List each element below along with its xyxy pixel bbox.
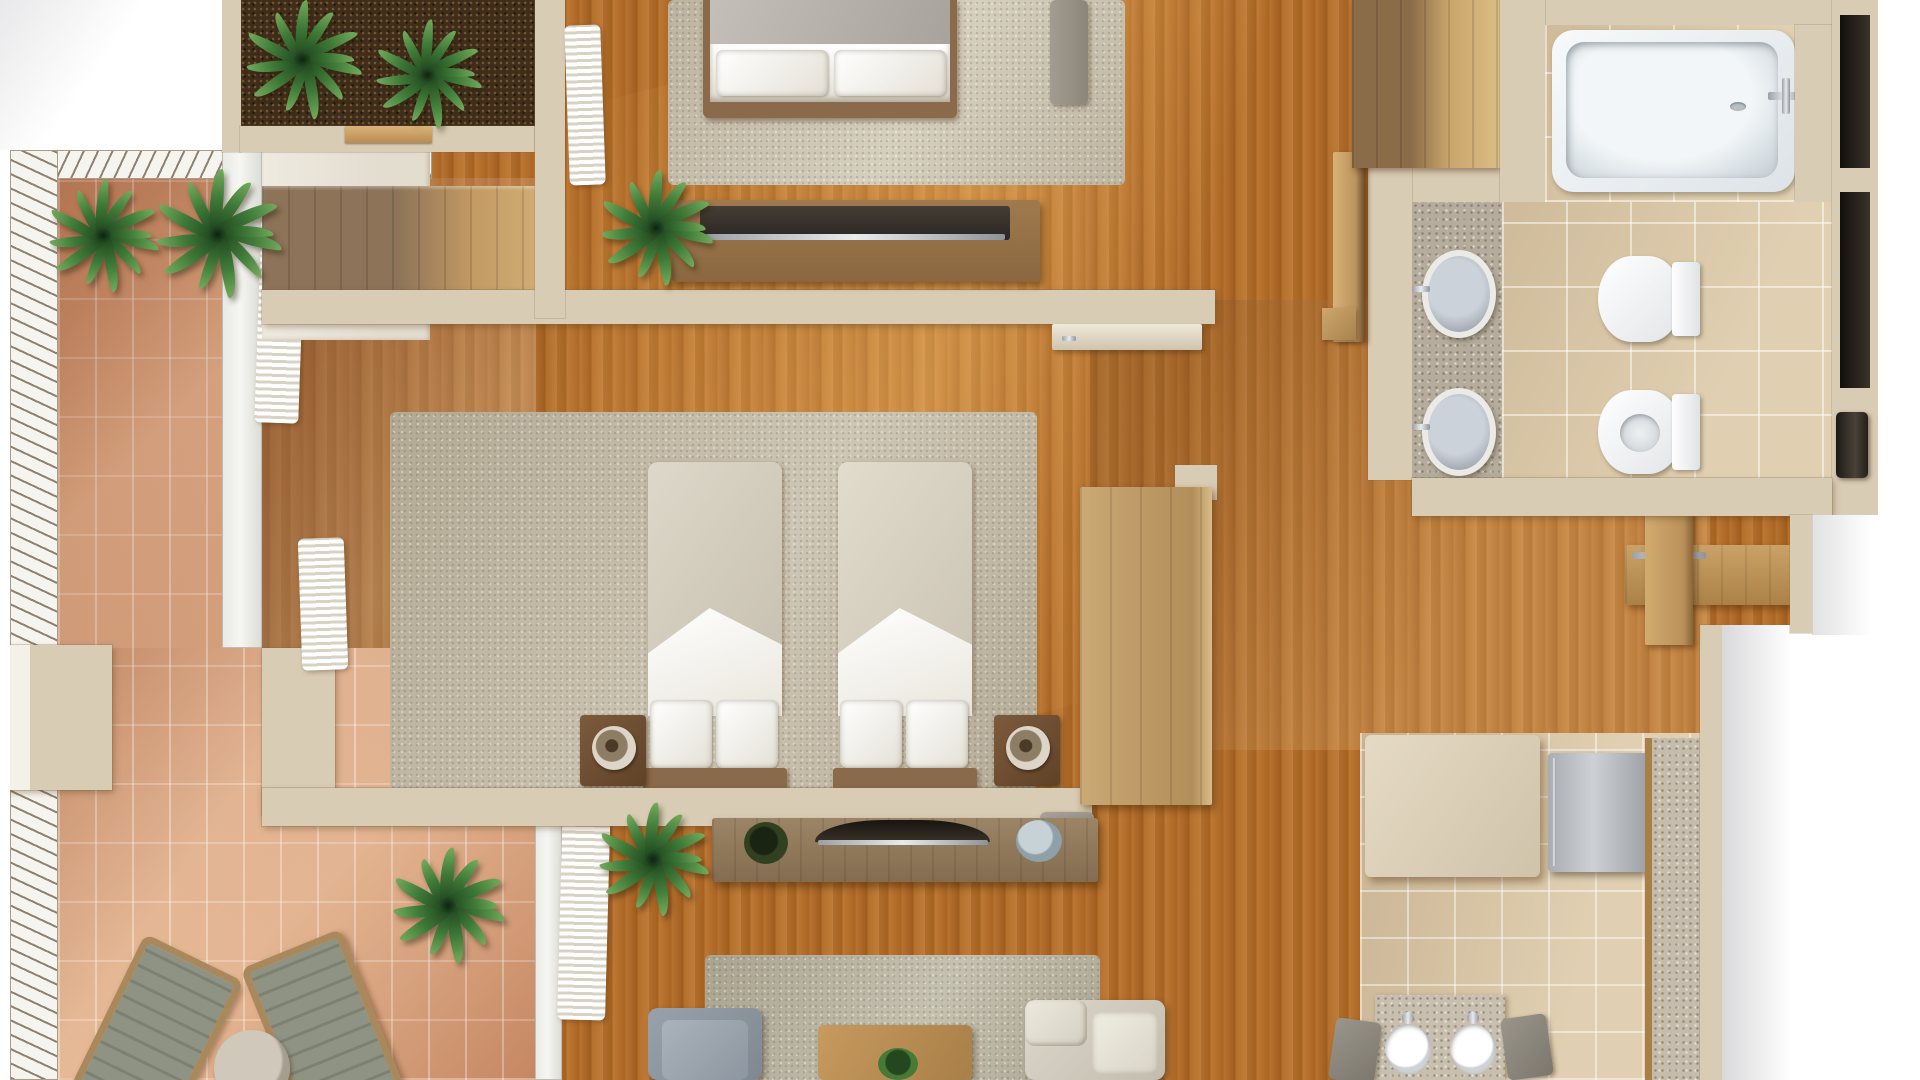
closet-unit [1080,487,1212,805]
bathroom [1320,0,1920,520]
corner-sofa-cushion [1092,1012,1158,1074]
corner-sofa-chaise [1025,1000,1087,1046]
bidet-tank [1672,394,1700,470]
vanity-faucet-bottom-icon [1412,424,1430,430]
outside-right-top [1878,0,1920,520]
east-wall-mid [1790,515,1812,633]
outside-left-edge [0,150,10,1080]
refrigerator [1548,753,1648,872]
curtain-bedroom2-sw [298,537,349,671]
outside-right-bottom [1722,625,1920,1080]
bidet [1598,390,1702,474]
bathtub-faucet-cross-icon [1782,78,1790,114]
toilet-tank [1672,262,1700,336]
lamp-left-icon [592,726,636,770]
outside-top-left [0,0,222,150]
bathtub-drain-icon [1730,102,1746,111]
kitchen-faucet-right-icon [1467,1012,1479,1024]
vanity-sink-top [1422,250,1496,338]
vanity-faucet-top-icon [1412,286,1430,292]
tub-niche-wall-right [1795,25,1832,202]
bidet-inner-icon [1620,414,1660,452]
bathroom-west-wall [1368,150,1412,480]
floorplan-render [0,0,1920,1080]
tv-plant-pot-icon [744,822,788,864]
kitchen-stool-left [1328,1017,1382,1080]
kitchen-sink-basin-right [1450,1024,1496,1074]
kitchen [1300,600,1750,1080]
living-armchair-cushion [662,1020,748,1080]
bathroom-door-threshold [1322,308,1356,340]
toilet [1598,256,1702,342]
kitchen-stool-right [1500,1013,1554,1080]
tub-niche-wall-left [1500,0,1545,202]
bathtub [1552,30,1795,192]
vanity-sink-bottom [1422,388,1496,476]
coffee-table-plant-icon [878,1048,918,1080]
service-niche-bottom [1840,192,1870,388]
hall-wardrobe [1352,0,1500,168]
toilet-bowl [1598,256,1682,342]
bed-a-pillow-left [650,700,712,768]
kitchen-east-counter [1652,738,1700,1080]
living-room [600,780,1200,1080]
tv-stand-bar [818,840,988,845]
bed-a [643,458,787,792]
bed-b-pillow-left [840,700,902,768]
bathtub-inner [1566,42,1778,178]
kitchen-sink-basin-left [1385,1024,1431,1074]
kitchen-east-wall [1700,625,1722,1080]
refrigerator-handle-icon [1552,758,1556,866]
lamp-right-icon [1006,726,1050,770]
bed-a-pillow-right [716,700,778,768]
decor-bowl-icon [1016,820,1062,862]
waste-bin-icon [1836,412,1868,478]
kitchen-island [1365,735,1540,877]
bathroom-south-wall [1412,478,1832,516]
bed-b [833,458,977,792]
service-niche-top [1840,15,1870,168]
bed-b-pillow-right [906,700,968,768]
kitchen-faucet-left-icon [1402,1012,1414,1024]
